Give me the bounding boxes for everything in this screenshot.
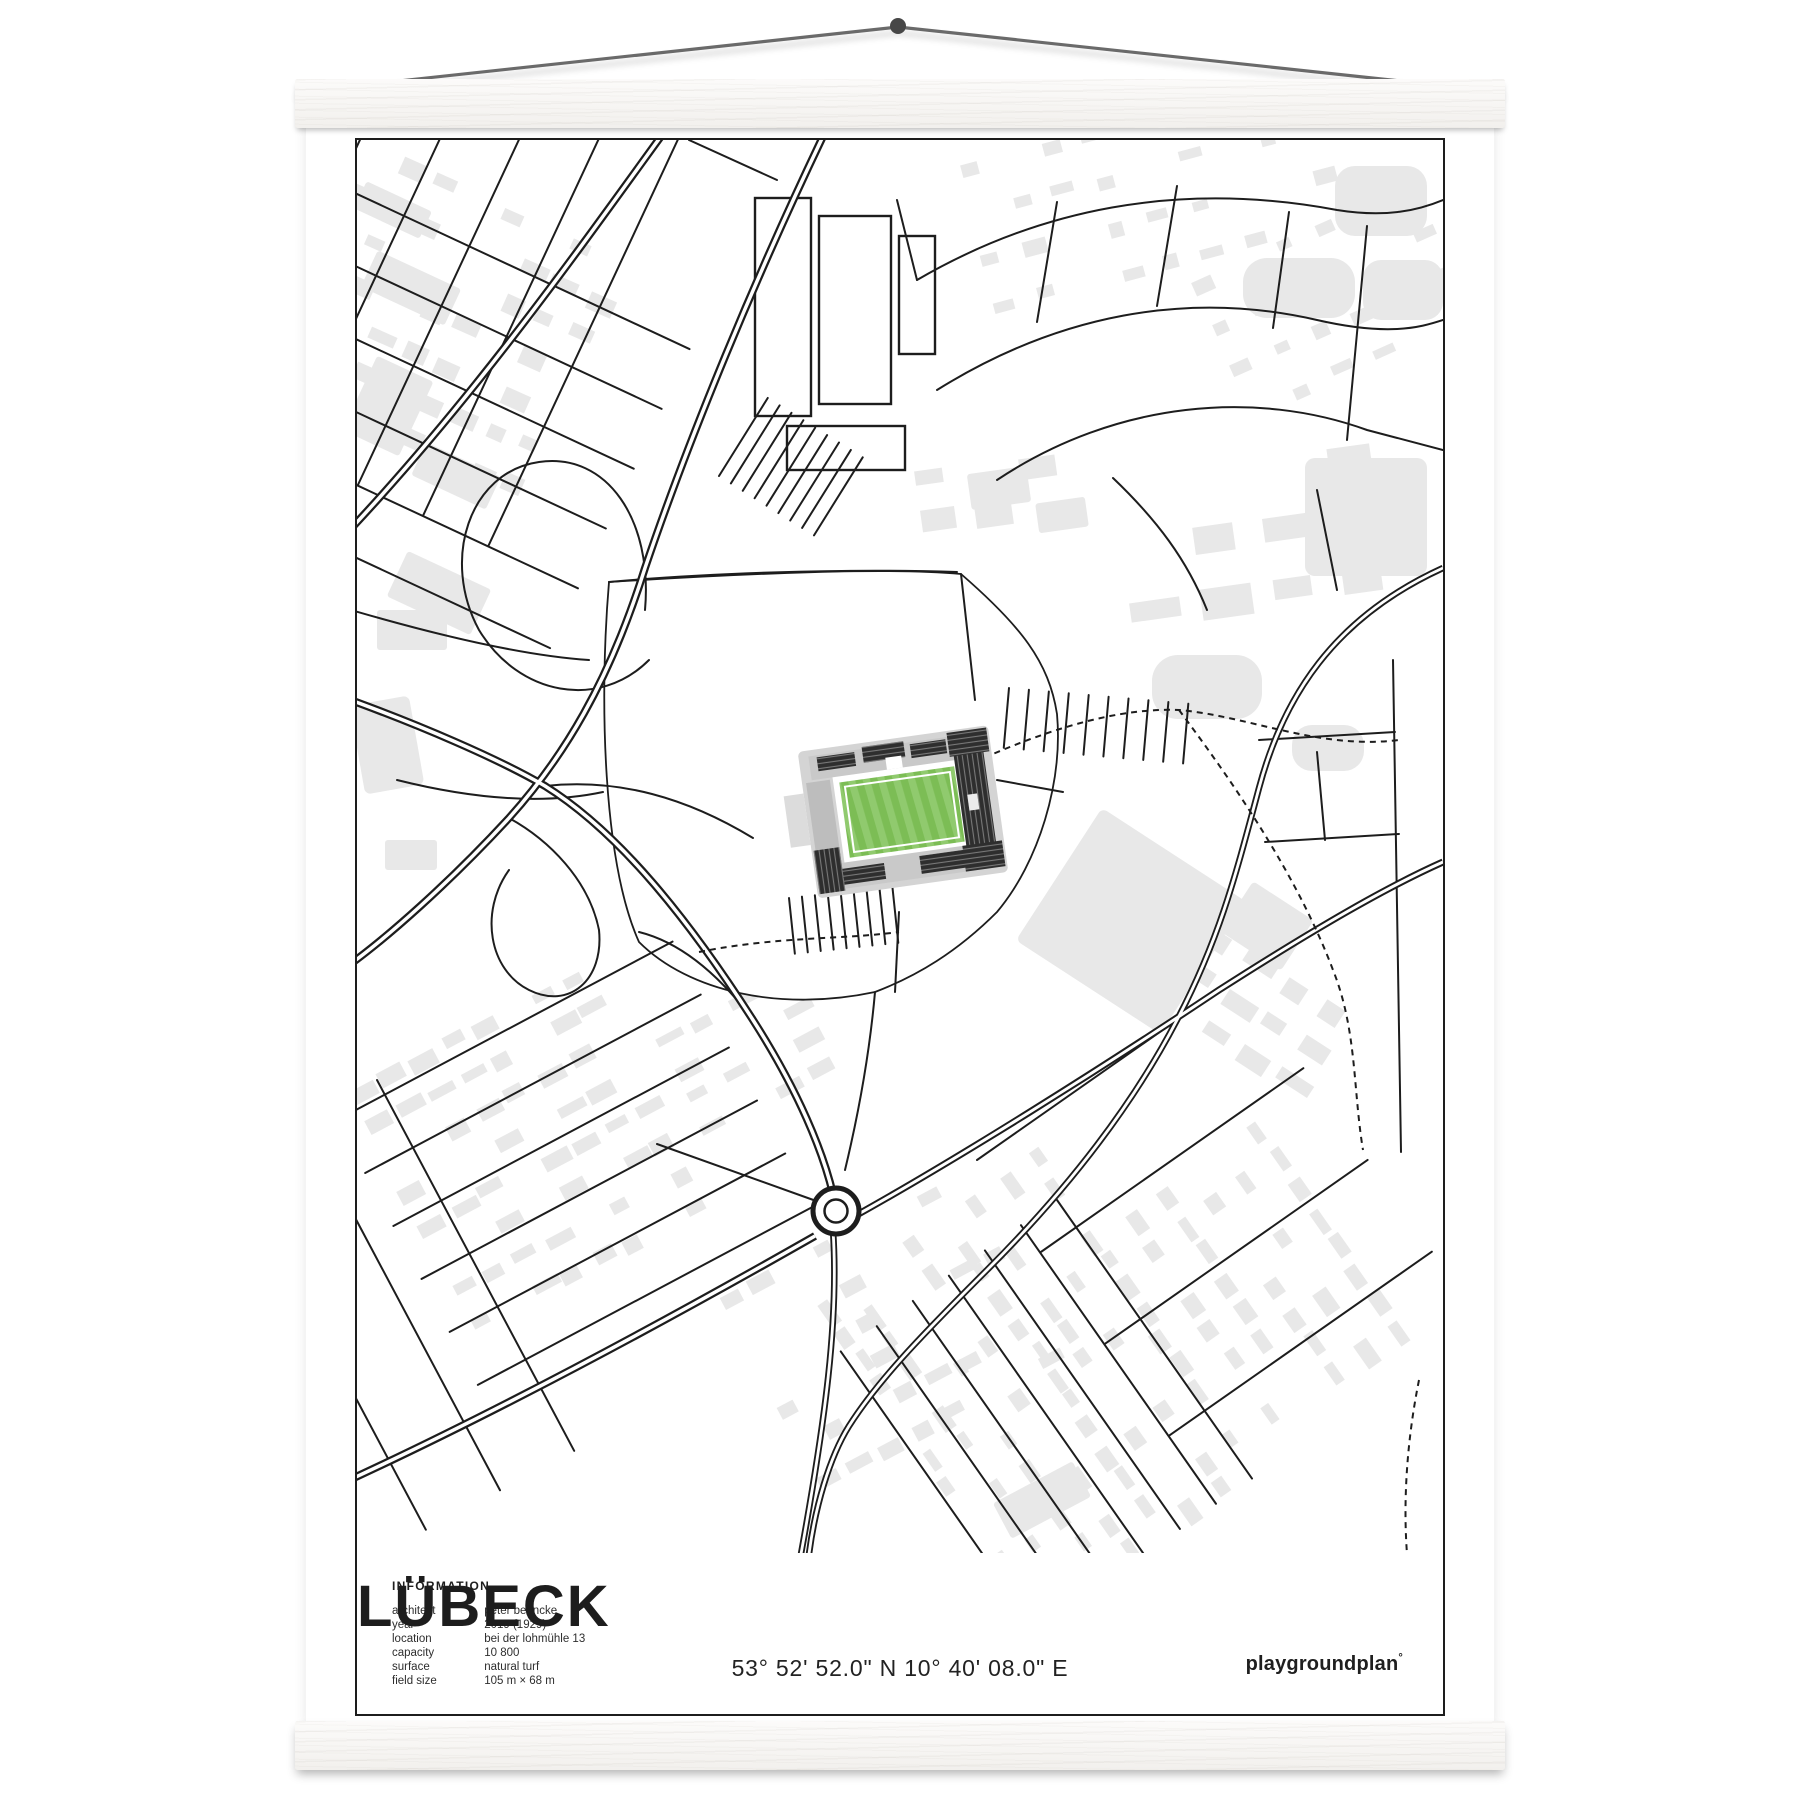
- brand-logo: playgroundplan°: [1246, 1653, 1403, 1676]
- nail-icon: [890, 18, 906, 34]
- brand-mark: °: [1398, 1652, 1403, 1664]
- top-wooden-rail: [295, 79, 1505, 128]
- stadium-city-map: [357, 140, 1443, 1553]
- poster-paper: INFORMATION architect peter behncke year…: [306, 103, 1494, 1725]
- brand-text: playgroundplan: [1246, 1653, 1399, 1675]
- roundabout-icon: [813, 1188, 859, 1234]
- poster-title: LÜBECK: [357, 1577, 1443, 1637]
- poster-product-scene: INFORMATION architect peter behncke year…: [0, 0, 1800, 1800]
- pitch: [839, 766, 964, 857]
- poster-frame-border: INFORMATION architect peter behncke year…: [355, 138, 1445, 1716]
- bottom-wooden-rail: [295, 1721, 1505, 1770]
- poster-caption: INFORMATION architect peter behncke year…: [357, 1553, 1443, 1714]
